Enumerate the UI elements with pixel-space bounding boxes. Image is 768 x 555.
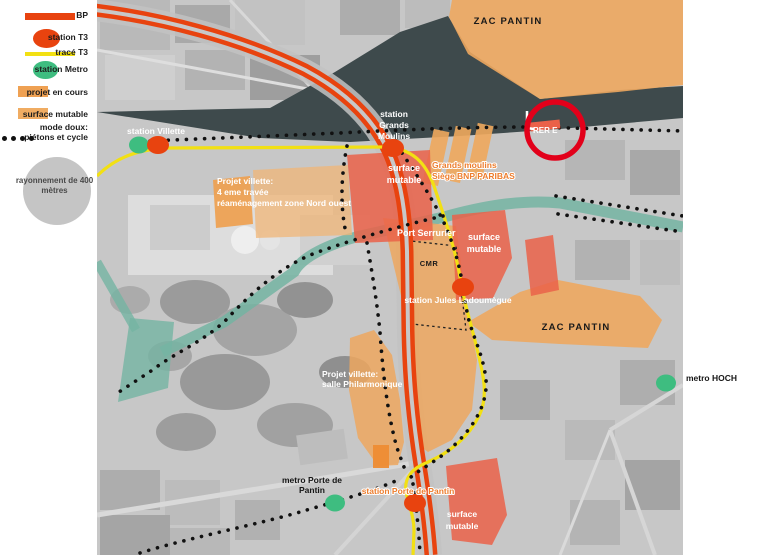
label-surface-mutable-south-1: surface (447, 509, 478, 519)
label-cmr: CMR (420, 259, 439, 268)
label-grands-moulins-bnp-2: Siège BNP PARIBAS (432, 171, 515, 181)
label-station-jules-ladoumegue: station Jules Ladoumègue (404, 295, 511, 305)
label-station-villette: station Villette (127, 126, 185, 136)
label-projet-villette-nord-2: 4 eme travée (217, 187, 269, 197)
metro-dot-porte-de-pantin (325, 495, 345, 512)
label-zac-pantin-east: ZAC PANTIN (542, 322, 611, 333)
label-projet-villette-nord-1: Projet villette: (217, 176, 273, 186)
t3-dot-grands-moulins (382, 139, 404, 157)
legend-mode-doux-swatch (2, 136, 42, 141)
label-station-grands-moulins-1: station (380, 109, 408, 119)
surface-mutable-center-area-2 (525, 235, 559, 296)
label-station-grands-moulins-3: Moulins (378, 131, 410, 141)
label-projet-villette-salle-2: salle Philarmonique (322, 379, 403, 389)
legend-projet-label: projet en cours (0, 88, 88, 97)
label-station-porte-de-pantin: station Porte de Pantin (362, 486, 455, 496)
legend-radius-line-2: mètres (2, 186, 107, 196)
label-surface-mutable-nw-1: surface (388, 163, 420, 173)
legend-station-metro-label: station Metro (0, 65, 88, 74)
label-port-serrurier: Port Serrurier (397, 228, 456, 238)
t3-dot-jules-ladoumegue (452, 278, 474, 296)
label-surface-mutable-nw-2: mutable (387, 175, 422, 185)
label-metro-hoch: metro HOCH (686, 373, 737, 383)
t3-dot-porte-de-pantin (404, 494, 426, 512)
map-canvas: ZAC PANTIN station Villette station Gran… (0, 0, 768, 555)
legend-surface-label: surface mutable (0, 110, 88, 119)
projet-small-block (373, 445, 389, 468)
label-surface-mutable-center-1: surface (468, 232, 500, 242)
urban-planning-map-page: ZAC PANTIN station Villette station Gran… (0, 0, 768, 555)
legend-bp-label: BP (0, 11, 88, 20)
label-metro-porte-de-pantin-1: metro Porte de (282, 475, 342, 485)
label-metro-porte-de-pantin-2: Pantin (299, 485, 325, 495)
legend-trace-t3-label: tracé T3 (0, 48, 88, 57)
metro-dot-hoch (656, 375, 676, 392)
legend: BP station T3 tracé T3 station Metro pro… (0, 0, 97, 250)
label-station-grands-moulins-2: Grands (379, 120, 409, 130)
label-surface-mutable-south-2: mutable (446, 521, 479, 531)
metro-dot-villette (129, 137, 149, 154)
label-grands-moulins-bnp-1: Grands moulins (432, 160, 497, 170)
legend-mode-doux-label-1: mode doux: (0, 123, 88, 132)
label-rer-e: RER E (533, 126, 558, 135)
legend-radius-text: rayonnement de 400 mètres (2, 176, 107, 196)
label-zac-pantin-top: ZAC PANTIN (474, 16, 543, 27)
t3-dot-villette (147, 136, 169, 154)
label-surface-mutable-center-2: mutable (467, 244, 502, 254)
legend-station-t3-label: station T3 (0, 33, 88, 42)
legend-radius-line-1: rayonnement de 400 (2, 176, 107, 186)
surface-mutable-south-area (446, 458, 507, 545)
label-projet-villette-nord-3: réaménagement zone Nord ouest (217, 198, 351, 208)
label-projet-villette-salle-1: Projet villette: (322, 369, 378, 379)
